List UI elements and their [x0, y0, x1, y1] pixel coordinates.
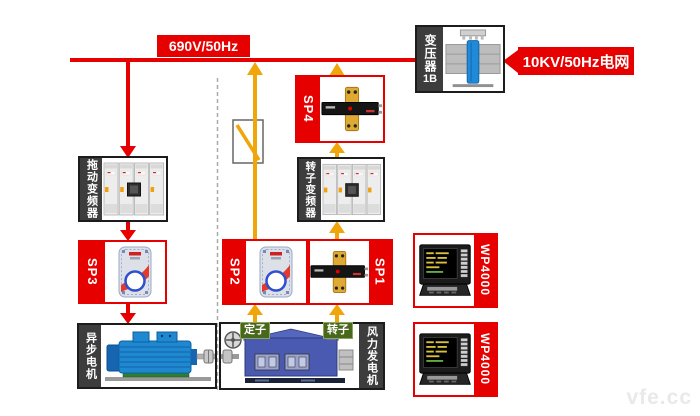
sp2-label: SP2: [229, 258, 242, 286]
voltage-transducer-icon: [257, 245, 295, 299]
rotor-inverter-box: 转子变频器: [297, 157, 385, 222]
async-motor-image-area: [101, 325, 215, 387]
yellow-arrow-sp1-to-rotor-inverter: [329, 221, 345, 239]
power-analyzer-icon: [416, 242, 474, 300]
transformer-box: 变压器 1B: [415, 25, 505, 93]
sp3-label: SP3: [86, 258, 99, 286]
transformer-id: 1B: [423, 73, 437, 85]
rotor-inverter-image-area: [321, 159, 383, 220]
inverter-cabinet-icon: [322, 162, 382, 217]
wp4000-top-label-strip: WP4000: [474, 235, 496, 306]
wind-power-test-diagram: 690V/50Hz 10KV/50Hz电网 变压器 1B 拖动变频: [0, 0, 700, 416]
sp3-image-area: [105, 242, 165, 302]
async-motor-label: 异步电机: [85, 332, 96, 380]
stator-tag: 定子: [240, 322, 270, 339]
sp1-box: SP1: [308, 239, 393, 305]
yellow-arrow-rotor-to-sp1: [329, 304, 345, 323]
wp4000-bottom-label: WP4000: [479, 333, 491, 385]
red-arrow-sp3-to-motor: [120, 304, 136, 324]
sp2-image-area: [246, 241, 306, 303]
yellow-arrow-rotor-inverter-to-sp4: [329, 142, 345, 158]
sp1-label: SP1: [374, 258, 387, 286]
transformer-label-strip: 变压器 1B: [417, 27, 443, 91]
rotor-inverter-label: 转子变频器: [305, 161, 316, 219]
watermark: vfe.cc: [626, 386, 692, 410]
sp3-label-strip: SP3: [80, 242, 105, 302]
current-sensor-icon: [321, 86, 383, 132]
inverter-cabinet-icon: [103, 161, 165, 217]
red-arrow-grid-to-transformer: [503, 50, 518, 73]
current-sensor-icon: [310, 249, 369, 295]
rotor-inverter-label-strip: 转子变频器: [299, 159, 321, 220]
sp4-image-area: [320, 77, 383, 141]
sp4-label: SP4: [302, 95, 315, 123]
wp4000-bottom-label-strip: WP4000: [474, 324, 496, 395]
sp4-box: SP4: [295, 75, 385, 143]
sp1-image-area: [310, 241, 369, 303]
power-analyzer-icon: [416, 331, 474, 389]
wp4000-top-box: WP4000: [413, 233, 498, 308]
wp4000-bottom-box: WP4000: [413, 322, 498, 397]
drive-inverter-label: 拖动变频器: [86, 159, 97, 219]
wp4000-top-image-area: [415, 235, 474, 306]
transformer-icon: [444, 29, 502, 89]
async-motor-label-strip: 异步电机: [79, 325, 101, 387]
drive-inverter-box: 拖动变频器: [78, 156, 168, 222]
wind-generator-label: 风力发电机: [366, 326, 377, 386]
drive-inverter-image-area: [102, 158, 166, 220]
drive-inverter-label-strip: 拖动变频器: [80, 158, 102, 220]
sp4-label-strip: SP4: [297, 77, 320, 141]
red-arrow-bus-to-drive-inverter: [120, 60, 136, 158]
sp3-box: SP3: [78, 240, 167, 304]
grid-label: 10KV/50Hz电网: [518, 47, 634, 75]
async-motor-box: 异步电机: [77, 323, 217, 389]
voltage-transducer-icon: [116, 245, 154, 299]
sp2-label-strip: SP2: [224, 241, 246, 303]
wp4000-bottom-image-area: [415, 324, 474, 395]
motor-icon: [101, 325, 215, 387]
transformer-name: 变压器: [424, 34, 436, 73]
wind-generator-label-strip: 风力发电机: [359, 324, 383, 388]
rotor-tag: 转子: [323, 322, 353, 339]
bus-line-690v: [70, 58, 417, 62]
transformer-image-area: [443, 27, 503, 91]
yellow-arrow-stator-to-sp2: [247, 304, 263, 323]
red-arrow-drive-inverter-to-sp3: [120, 222, 136, 241]
sp1-label-strip: SP1: [369, 241, 391, 303]
bus-voltage-label: 690V/50Hz: [157, 35, 250, 57]
sp2-box: SP2: [222, 239, 308, 305]
wp4000-top-label: WP4000: [479, 244, 491, 296]
